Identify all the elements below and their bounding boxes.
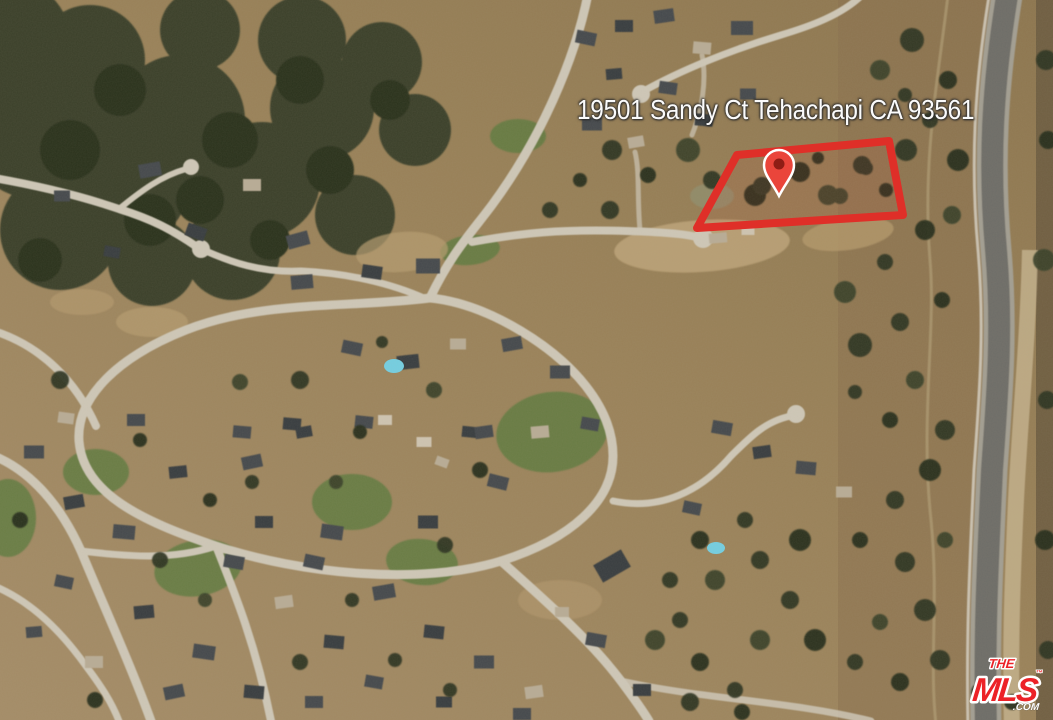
mls-logo-trademark: ™ [1035,670,1043,677]
address-overlay-label: 19501 Sandy Ct Tehachapi CA 93561 [577,94,974,126]
mls-logo: THE MLS ™ .COM [965,650,1049,714]
mls-logo-com: .COM [1012,702,1040,713]
mls-logo-the: THE [988,656,1016,671]
listing-map-photo: 19501 Sandy Ct Tehachapi CA 93561 THE ML… [0,0,1053,720]
